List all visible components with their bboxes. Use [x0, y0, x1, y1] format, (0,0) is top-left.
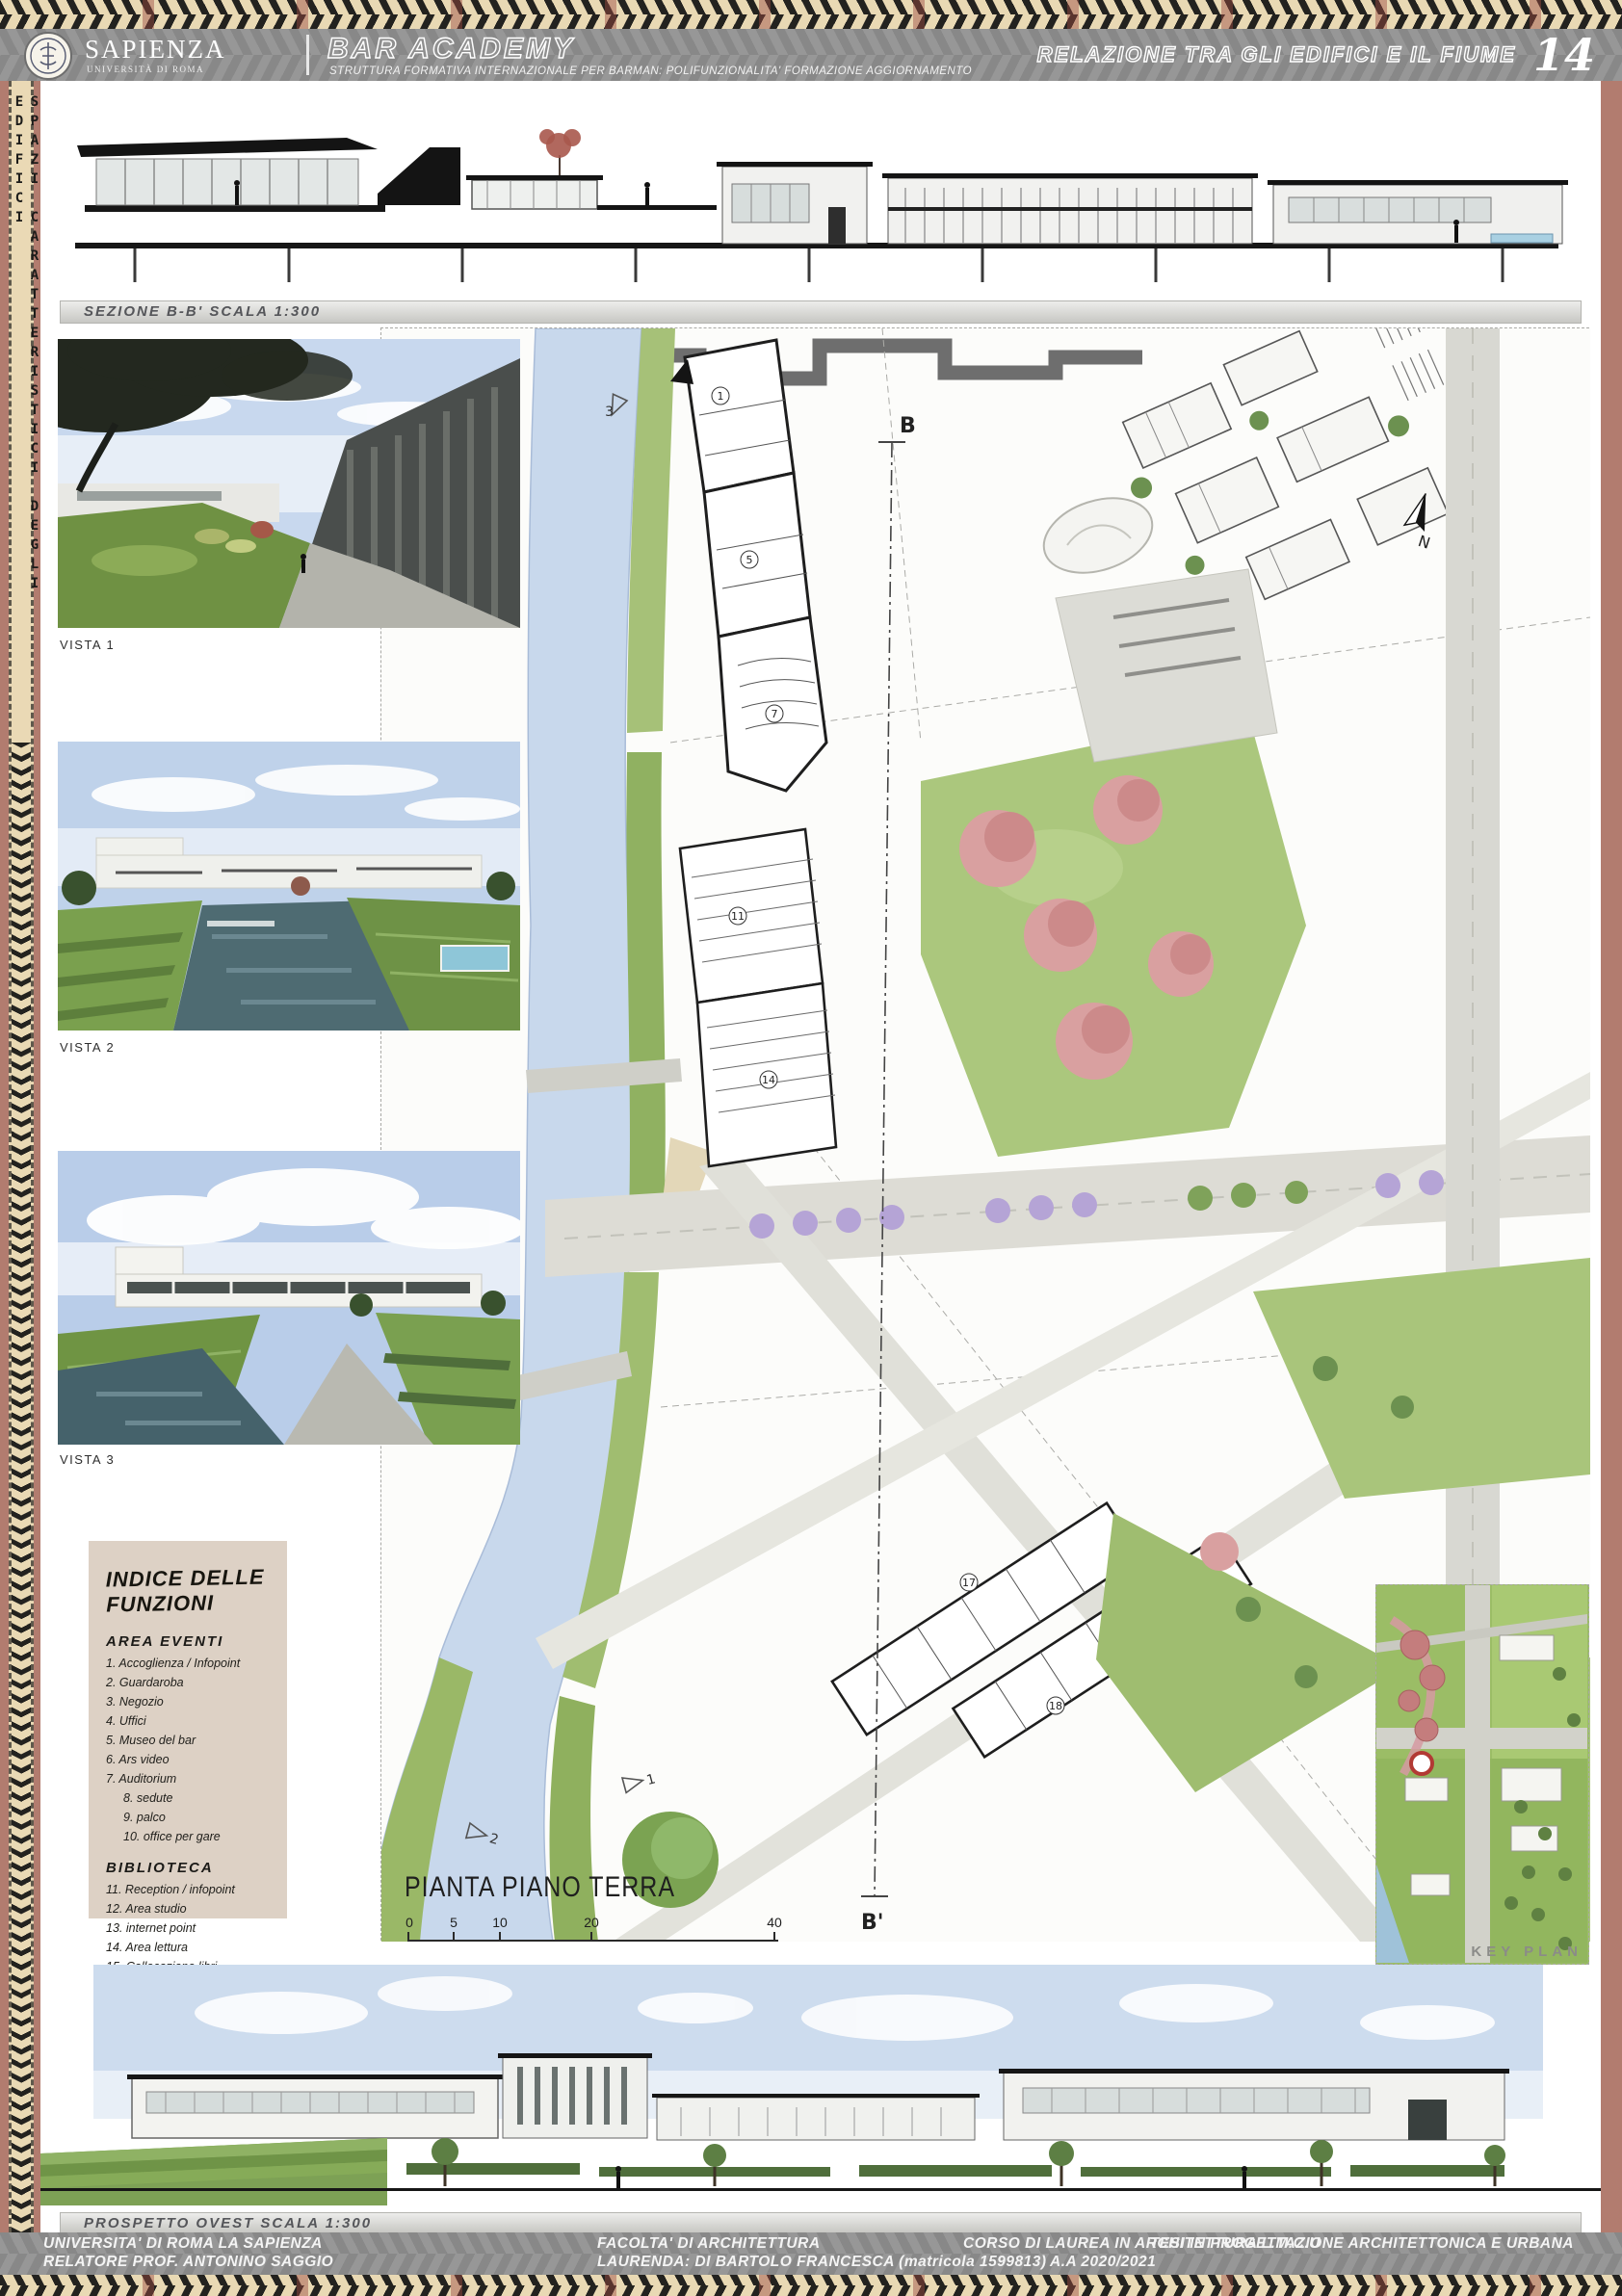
legend-group1-heading: AREA EVENTI: [106, 1633, 274, 1650]
svg-text:3: 3: [605, 404, 614, 420]
render-vista-2: [58, 742, 520, 1031]
elevation-label: PROSPETTO OVEST SCALA 1:300: [84, 2215, 372, 2231]
svg-text:11: 11: [731, 910, 745, 923]
keyplan-label: KEY PLAN: [1471, 1944, 1583, 1960]
section-drawing: [58, 91, 1584, 299]
legend-item: 12. Area studio: [106, 1899, 274, 1918]
sidebar-zigzag-pattern: [12, 743, 31, 2232]
legend-item: 3. Negozio: [106, 1692, 274, 1711]
footer-bar: UNIVERSITA' DI ROMA LA SAPIENZA FACOLTA'…: [0, 2232, 1622, 2275]
footer-university: UNIVERSITA' DI ROMA LA SAPIENZA: [43, 2235, 323, 2253]
header-divider: [306, 35, 309, 75]
svg-text:17: 17: [962, 1577, 976, 1589]
elevation-drawing: [40, 1965, 1601, 2210]
render-vista-3: [58, 1151, 520, 1445]
legend-subitem: 10. office per gare: [123, 1827, 274, 1846]
legend-item: 7. Auditorium: [106, 1769, 274, 1788]
legend-subitem: 8. sedute: [123, 1788, 274, 1808]
legend-item: 5. Museo del bar: [106, 1731, 274, 1750]
left-sidebar: SPAZI CARATTERISTICI DEGLI EDIFICI: [0, 81, 40, 2232]
presentation-board: SAPIENZA UNIVERSITÀ DI ROMA BAR ACADEMY …: [0, 0, 1622, 2296]
svg-text:18: 18: [1049, 1700, 1062, 1712]
scale-tick-label: 20: [584, 1915, 599, 1930]
keyplan-inset: KEY PLAN: [1375, 1584, 1589, 1965]
footer-supervisor: RELATORE PROF. ANTONINO SAGGIO: [43, 2254, 333, 2271]
project-title: BAR ACADEMY: [327, 33, 575, 65]
sapienza-logo: [23, 31, 73, 81]
header-bar: SAPIENZA UNIVERSITÀ DI ROMA BAR ACADEMY …: [0, 29, 1622, 81]
scale-tick-label: 40: [767, 1915, 782, 1930]
footer-thesis-type: TESI IN PROGETTAZIONE ARCHITETTONICA E U…: [1150, 2235, 1574, 2253]
svg-text:5: 5: [746, 554, 753, 566]
legend-title: INDICE DELLE FUNZIONI: [106, 1564, 275, 1617]
legend-subitem: 9. palco: [123, 1808, 274, 1827]
right-border-band: [1601, 81, 1622, 2232]
section-label-strip: SEZIONE B-B' SCALA 1:300: [60, 300, 1582, 324]
section-label: SEZIONE B-B' SCALA 1:300: [84, 303, 321, 320]
vista-1-label: VISTA 1: [60, 638, 115, 652]
function-index-panel: INDICE DELLE FUNZIONI AREA EVENTI 1. Acc…: [89, 1541, 287, 1918]
bottom-border-pattern: [0, 2275, 1622, 2296]
project-subtitle: STRUTTURA FORMATIVA INTERNAZIONALE PER B…: [329, 65, 972, 77]
footer-year: A.A 2020/2021: [1050, 2254, 1156, 2271]
legend-group2-heading: BIBLIOTECA: [106, 1860, 274, 1876]
svg-text:7: 7: [772, 708, 778, 720]
footer-faculty: FACOLTA' DI ARCHITETTURA: [597, 2235, 821, 2253]
sheet-number: 14: [1533, 29, 1595, 81]
legend-item: 14. Area lettura: [106, 1938, 274, 1957]
footer-student: LAURENDA: DI BARTOLO FRANCESCA (matricol…: [597, 2254, 1047, 2271]
scale-tick-label: 5: [450, 1915, 458, 1930]
render-vista-1: [58, 339, 520, 628]
svg-text:14: 14: [762, 1074, 775, 1086]
svg-text:1: 1: [718, 390, 724, 403]
vista-2-label: VISTA 2: [60, 1040, 115, 1055]
university-subtitle: UNIVERSITÀ DI ROMA: [87, 65, 204, 74]
svg-text:B': B': [861, 1911, 884, 1935]
sidebar-vertical-title: SPAZI CARATTERISTICI DEGLI EDIFICI: [12, 94, 42, 735]
legend-item: 4. Uffici: [106, 1711, 274, 1731]
legend-item: 11. Reception / infopoint: [106, 1880, 274, 1899]
university-name: SAPIENZA: [85, 35, 226, 65]
legend-item: 6. Ars video: [106, 1750, 274, 1769]
legend-item: 13. internet point: [106, 1918, 274, 1938]
legend-item: 1. Accoglienza / Infopoint: [106, 1654, 274, 1673]
elevation-label-strip: PROSPETTO OVEST SCALA 1:300: [60, 2212, 1582, 2233]
plan-scale-bar: 0 5 10 20 40: [407, 1911, 778, 1942]
svg-text:B: B: [900, 414, 916, 438]
scale-tick-label: 10: [492, 1915, 508, 1930]
top-border-pattern: [0, 0, 1622, 29]
scale-tick-label: 0: [405, 1915, 413, 1930]
legend-item: 2. Guardaroba: [106, 1673, 274, 1692]
sheet-title: RELAZIONE TRA GLI EDIFICI E IL FIUME: [1037, 42, 1516, 67]
vista-3-label: VISTA 3: [60, 1452, 115, 1467]
plan-title: PIANTA PIANO TERRA: [405, 1871, 675, 1904]
